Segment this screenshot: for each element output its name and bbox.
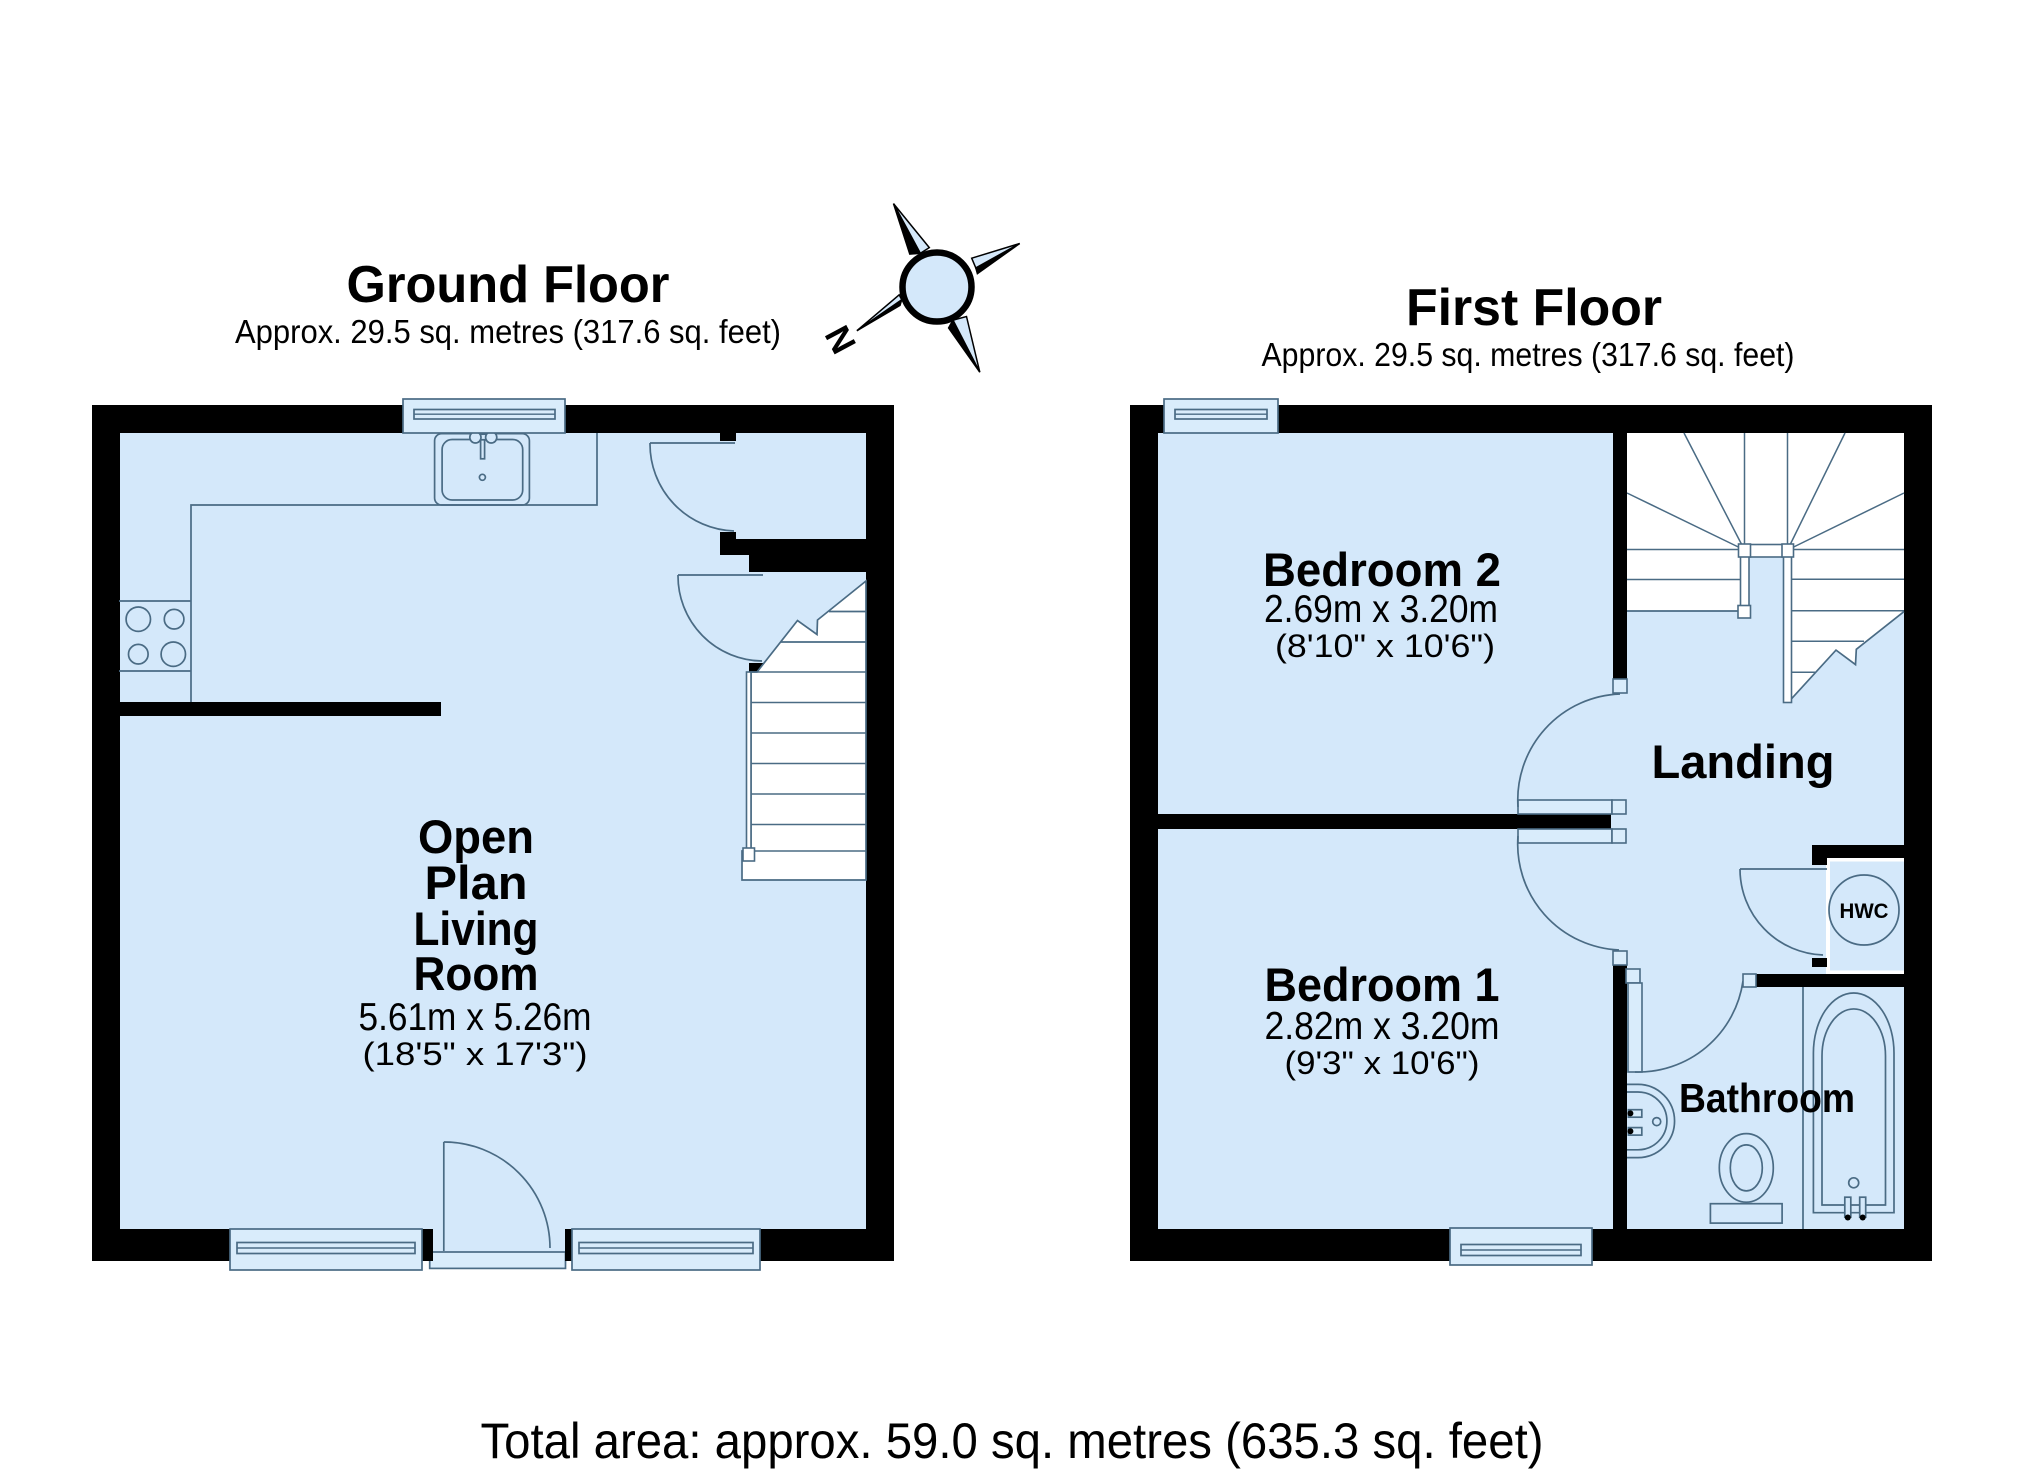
svg-text:Approx. 29.5 sq. metres (317.6: Approx. 29.5 sq. metres (317.6 sq. feet) [1262,336,1795,373]
svg-text:Approx. 29.5 sq. metres (317.6: Approx. 29.5 sq. metres (317.6 sq. feet) [235,313,781,350]
svg-text:2.82m x 3.20m: 2.82m x 3.20m [1265,1005,1500,1048]
svg-text:Landing: Landing [1652,735,1835,788]
svg-text:(9'3" x 10'6"): (9'3" x 10'6") [1285,1045,1480,1081]
svg-text:Bedroom 1: Bedroom 1 [1265,958,1500,1011]
svg-text:Bathroom: Bathroom [1679,1075,1855,1121]
svg-text:Room: Room [414,947,539,1000]
svg-text:2.69m x 3.20m: 2.69m x 3.20m [1264,588,1498,631]
svg-text:(8'10" x 10'6"): (8'10" x 10'6") [1275,628,1495,664]
svg-text:Ground Floor: Ground Floor [347,256,670,314]
svg-text:Total area: approx. 59.0 sq. m: Total area: approx. 59.0 sq. metres (635… [481,1413,1544,1469]
svg-text:(18'5" x 17'3"): (18'5" x 17'3") [363,1036,588,1072]
svg-text:5.61m x 5.26m: 5.61m x 5.26m [359,996,592,1039]
svg-text:First Floor: First Floor [1406,279,1662,337]
svg-text:HWC: HWC [1840,900,1889,923]
